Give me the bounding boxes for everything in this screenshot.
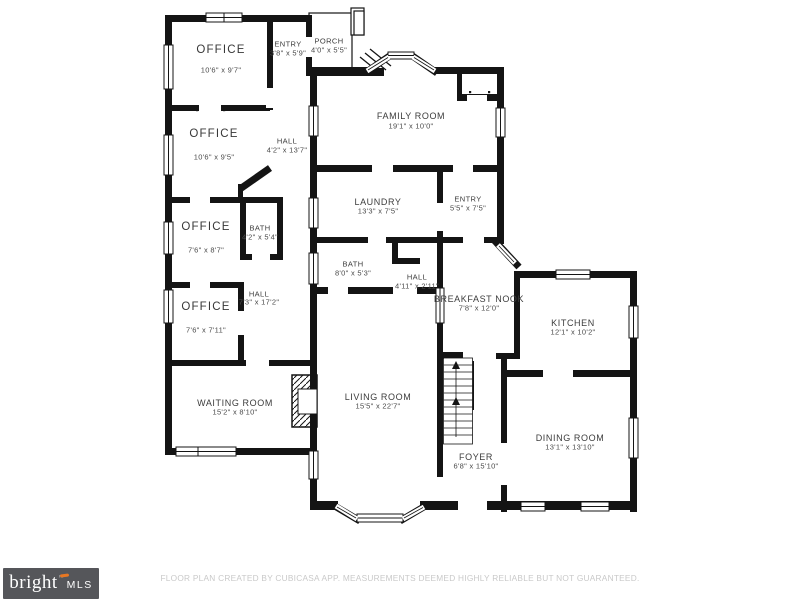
window	[309, 106, 318, 136]
window	[164, 290, 173, 323]
window	[176, 447, 236, 456]
window	[309, 198, 318, 228]
fireplace	[292, 375, 317, 427]
window	[436, 288, 444, 323]
window	[556, 270, 590, 279]
disclaimer-text: FLOOR PLAN CREATED BY CUBICASA APP. MEAS…	[0, 573, 800, 583]
floorplan-page: OFFICE10'6" x 9'7"ENTRY3'8" x 5'9"PORCH4…	[0, 0, 800, 600]
floor-plan-drawing	[0, 0, 800, 600]
window	[309, 451, 318, 479]
window	[206, 13, 242, 22]
windows-layer	[164, 13, 638, 522]
window	[581, 502, 609, 511]
walls-layer	[165, 15, 637, 512]
porch-outline	[309, 8, 364, 69]
window	[388, 52, 414, 59]
window	[309, 253, 318, 284]
window	[521, 502, 545, 511]
footer: bright™ MLS FLOOR PLAN CREATED BY CUBICA…	[0, 560, 800, 600]
window	[496, 108, 505, 137]
window	[164, 135, 173, 175]
window	[164, 45, 173, 89]
staircase	[444, 358, 473, 444]
window	[629, 306, 638, 338]
floor-plan: OFFICE10'6" x 9'7"ENTRY3'8" x 5'9"PORCH4…	[0, 0, 800, 600]
window	[164, 222, 173, 254]
window	[357, 514, 403, 522]
window	[629, 418, 638, 458]
